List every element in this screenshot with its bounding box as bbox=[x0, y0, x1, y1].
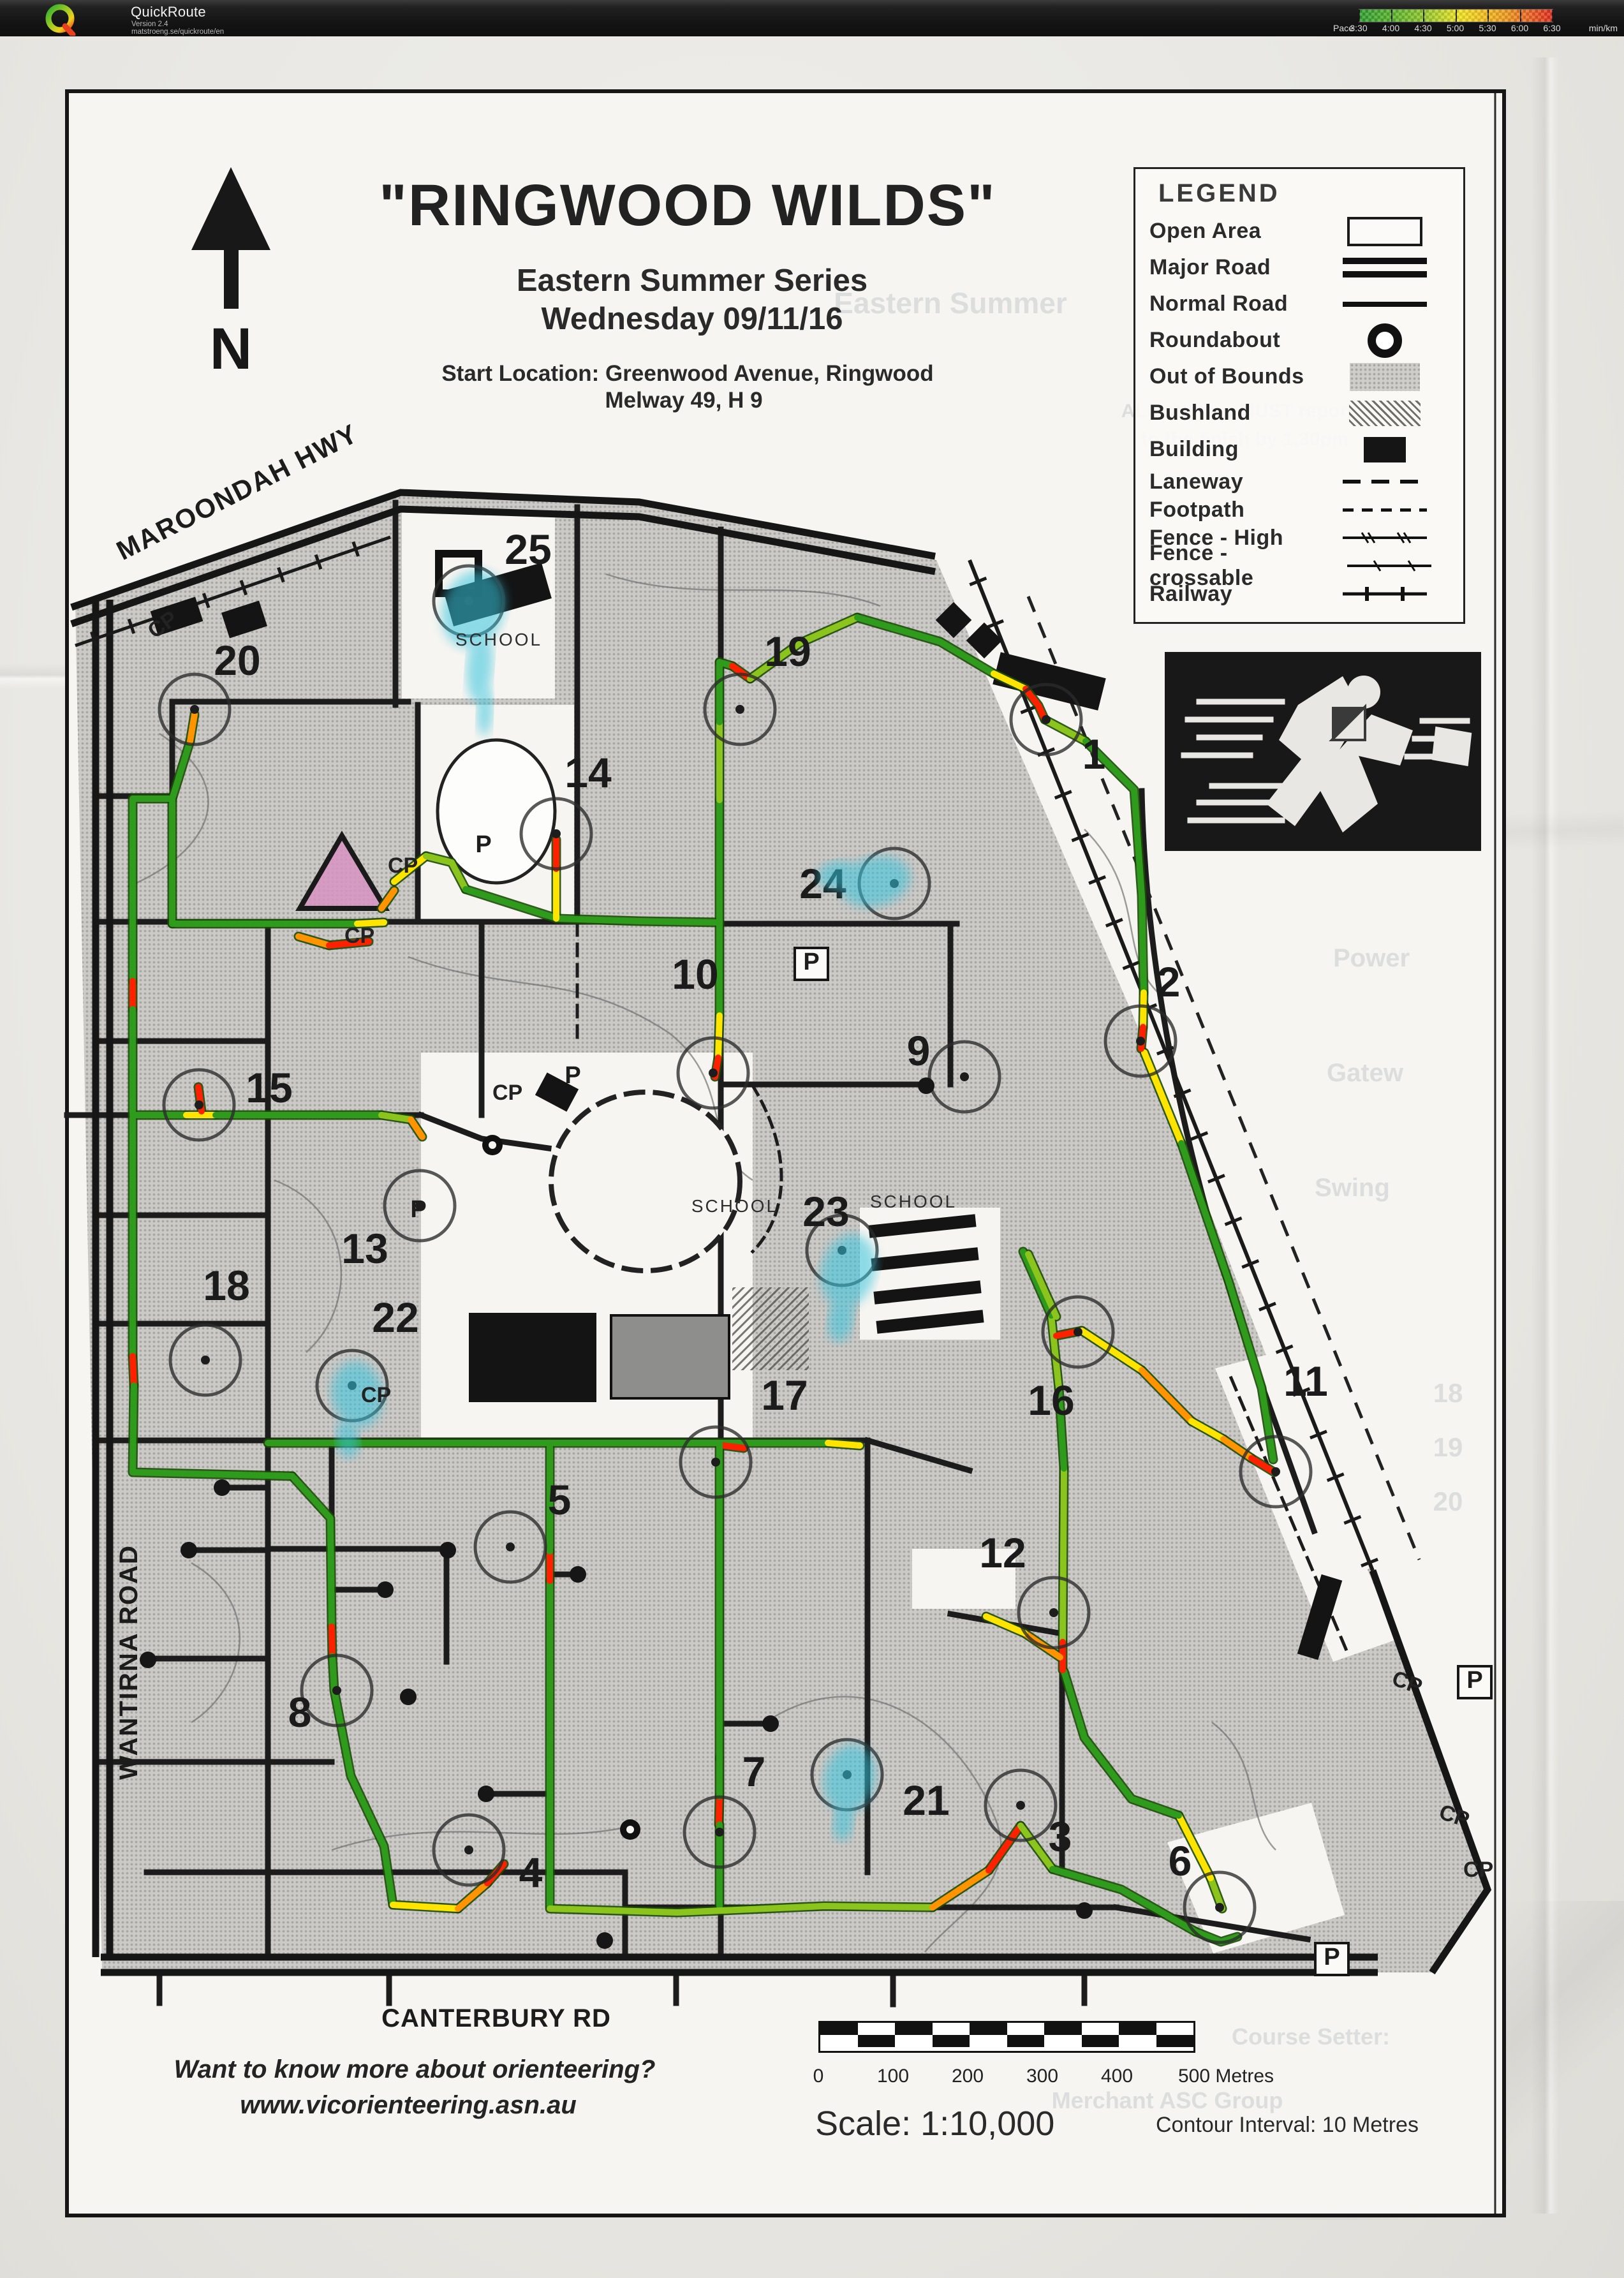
svg-text:4: 4 bbox=[519, 1849, 543, 1896]
scale-bar-cell bbox=[895, 2023, 933, 2035]
pace-legend-panel: Pace 3:304:004:305:005:306:006:30 min/km bbox=[1319, 0, 1619, 36]
parking-label: P bbox=[1466, 1667, 1482, 1694]
parking-label: P bbox=[475, 831, 491, 858]
title-bar: QuickRoute Version 2.4 matstroeng.se/qui… bbox=[0, 0, 1624, 36]
roundabout-swatch bbox=[1368, 323, 1402, 358]
legend-item: Bushland bbox=[1149, 395, 1452, 431]
parking-label: P bbox=[410, 1196, 426, 1223]
app-title: QuickRoute bbox=[131, 4, 206, 20]
svg-text:23: 23 bbox=[802, 1188, 849, 1235]
quickroute-logo-icon bbox=[37, 4, 88, 36]
scale-bar-cell bbox=[1119, 2035, 1156, 2047]
svg-text:22: 22 bbox=[372, 1294, 418, 1341]
major-road-symbol bbox=[1318, 258, 1452, 277]
parking-label: P bbox=[565, 1062, 580, 1089]
pace-tick bbox=[1423, 10, 1424, 22]
pace-tick bbox=[1487, 10, 1489, 22]
footer-url: www.vicorienteering.asn.au bbox=[240, 2091, 577, 2120]
scale-bar-cell bbox=[895, 2035, 933, 2047]
pace-tick-value: 6:30 bbox=[1543, 23, 1560, 33]
cp-label: CP bbox=[344, 924, 374, 948]
svg-text:1: 1 bbox=[1082, 730, 1106, 778]
bleed-through-text: 20 bbox=[1433, 1486, 1463, 1517]
legend-item: Out of Bounds bbox=[1149, 359, 1452, 395]
school-label: SCHOOL bbox=[455, 630, 542, 649]
bushland-symbol bbox=[1318, 401, 1452, 426]
parking-label: P bbox=[803, 949, 819, 975]
map-legend: LEGEND Open AreaMajor RoadNormal RoadRou… bbox=[1133, 167, 1465, 624]
pace-tick-value: 4:00 bbox=[1382, 23, 1399, 33]
svg-text:17: 17 bbox=[761, 1372, 808, 1419]
map-series: Eastern Summer Series bbox=[517, 263, 867, 299]
legend-item-label: Normal Road bbox=[1149, 292, 1288, 316]
pace-gradient-bar bbox=[1359, 9, 1553, 22]
scale-bar-cell bbox=[1156, 2035, 1194, 2047]
svg-text:8: 8 bbox=[288, 1689, 312, 1736]
scale-bar-cell bbox=[1119, 2023, 1156, 2035]
legend-item-label: Building bbox=[1149, 437, 1239, 462]
pace-tick-value: 5:00 bbox=[1447, 23, 1464, 33]
road-label-wantirna: WANTIRNA ROAD bbox=[115, 1544, 144, 1780]
cp-label: CP bbox=[361, 1383, 391, 1407]
svg-text:5: 5 bbox=[548, 1476, 572, 1523]
legend-item-label: Footpath bbox=[1149, 498, 1244, 522]
legend-title: LEGEND bbox=[1158, 179, 1452, 208]
building-symbol bbox=[1318, 437, 1452, 462]
legend-item-label: Bushland bbox=[1149, 401, 1251, 425]
scale-bar bbox=[818, 2021, 1195, 2053]
pace-tick bbox=[1456, 10, 1457, 22]
svg-text:16: 16 bbox=[1028, 1377, 1074, 1424]
scale-tick-label: 100 bbox=[877, 2066, 909, 2087]
cp-label: CP bbox=[388, 854, 418, 878]
app-site-url: matstroeng.se/quickroute/en bbox=[131, 28, 224, 36]
legend-item-label: Laneway bbox=[1149, 470, 1243, 494]
svg-text:19: 19 bbox=[764, 628, 811, 675]
athletics-track bbox=[551, 1092, 740, 1271]
svg-text:6: 6 bbox=[1169, 1837, 1192, 1884]
svg-text:20: 20 bbox=[214, 637, 260, 684]
svg-text:25: 25 bbox=[505, 526, 551, 573]
scale-bar-cell bbox=[1044, 2035, 1082, 2047]
orienteering-logo bbox=[1165, 652, 1481, 851]
scale-bar-cell bbox=[970, 2023, 1007, 2035]
scale-bar-cell bbox=[820, 2023, 858, 2035]
scale-bar-cell bbox=[1007, 2035, 1045, 2047]
normal-road-symbol bbox=[1318, 302, 1452, 307]
svg-text:18: 18 bbox=[203, 1262, 249, 1309]
legend-item: Footpath bbox=[1149, 496, 1452, 524]
scale-bar-cell bbox=[1082, 2023, 1119, 2035]
quickroute-window: QuickRoute Version 2.4 matstroeng.se/qui… bbox=[0, 0, 1624, 2278]
school-label: SCHOOL bbox=[691, 1196, 778, 1216]
school-label: SCHOOL bbox=[870, 1192, 957, 1211]
svg-text:3: 3 bbox=[1049, 1813, 1072, 1860]
svg-text:14: 14 bbox=[565, 749, 612, 796]
bleed-through-text: Power bbox=[1333, 944, 1410, 973]
building-swatch bbox=[1364, 437, 1406, 462]
building-gray bbox=[611, 1315, 729, 1398]
open-area-symbol bbox=[1318, 217, 1452, 246]
legend-item: Fence - crossable bbox=[1149, 552, 1452, 580]
roundabout-symbol bbox=[1318, 323, 1452, 358]
legend-item: Building bbox=[1149, 431, 1452, 468]
map-melway-ref: Melway 49, H 9 bbox=[605, 388, 762, 413]
fence-crossable-symbol bbox=[1326, 557, 1452, 575]
svg-text:10: 10 bbox=[672, 950, 718, 998]
bushland-swatch bbox=[1349, 401, 1421, 426]
scale-bar-cell bbox=[933, 2035, 970, 2047]
scale-tick-label: 500 Metres bbox=[1178, 2066, 1274, 2087]
scale-bar-cell bbox=[1007, 2023, 1045, 2035]
cp-label: CP bbox=[1463, 1858, 1493, 1882]
scale-tick-label: 300 bbox=[1026, 2066, 1058, 2087]
pace-tick-value: 3:30 bbox=[1350, 23, 1367, 33]
fence-high-symbol bbox=[1318, 529, 1452, 547]
scale-bar-cell bbox=[1156, 2023, 1194, 2035]
scale-tick-label: 0 bbox=[813, 2066, 824, 2087]
bleed-through-text: 19 bbox=[1433, 1432, 1463, 1463]
pace-unit: min/km bbox=[1589, 23, 1618, 33]
legend-item-label: Major Road bbox=[1149, 255, 1271, 280]
pace-tick bbox=[1391, 10, 1392, 22]
scale-bar-cell bbox=[1044, 2023, 1082, 2035]
legend-item-label: Railway bbox=[1149, 582, 1232, 607]
map-start-location: Start Location: Greenwood Avenue, Ringwo… bbox=[441, 361, 933, 387]
svg-text:7: 7 bbox=[742, 1748, 766, 1795]
scale-tick-label: 400 bbox=[1101, 2066, 1133, 2087]
svg-text:13: 13 bbox=[341, 1225, 388, 1272]
pace-tick-value: 5:30 bbox=[1479, 23, 1496, 33]
contour-interval-text: Contour Interval: 10 Metres bbox=[1156, 2113, 1419, 2138]
legend-item: Normal Road bbox=[1149, 286, 1452, 322]
bleed-through-text: Merchant ASC Group bbox=[1052, 2087, 1283, 2114]
legend-item-label: Open Area bbox=[1149, 219, 1261, 244]
north-label: N bbox=[210, 316, 252, 381]
scale-bar-cell bbox=[858, 2035, 896, 2047]
scale-bar-cell bbox=[858, 2023, 896, 2035]
pace-tick bbox=[1552, 10, 1553, 22]
major-road-swatch bbox=[1343, 258, 1427, 277]
bleed-through-text: Course Setter: bbox=[1232, 2023, 1390, 2050]
pace-tick bbox=[1359, 10, 1360, 22]
normal-road-swatch bbox=[1343, 302, 1427, 307]
pace-tick-value: 4:30 bbox=[1414, 23, 1431, 33]
pace-tick bbox=[1520, 10, 1521, 22]
scale-bar-cell bbox=[820, 2035, 858, 2047]
parking-label: P bbox=[1324, 1944, 1340, 1971]
svg-text:12: 12 bbox=[979, 1529, 1026, 1576]
map-title: "RINGWOOD WILDS" bbox=[379, 172, 996, 239]
map-date: Wednesday 09/11/16 bbox=[541, 301, 843, 337]
pace-tick-value: 6:00 bbox=[1511, 23, 1528, 33]
open-area-swatch bbox=[1347, 217, 1422, 246]
legend-item: Laneway bbox=[1149, 468, 1452, 496]
legend-item: Roundabout bbox=[1149, 322, 1452, 359]
legend-item: Major Road bbox=[1149, 249, 1452, 286]
scale-text: Scale: 1:10,000 bbox=[815, 2104, 1054, 2143]
svg-text:2: 2 bbox=[1157, 958, 1181, 1005]
bleed-through-text: Gatew bbox=[1327, 1059, 1403, 1088]
scale-bar-cell bbox=[970, 2035, 1007, 2047]
svg-text:9: 9 bbox=[907, 1027, 931, 1074]
laneway-symbol bbox=[1318, 480, 1452, 484]
svg-text:21: 21 bbox=[903, 1777, 949, 1824]
oob-swatch bbox=[1350, 363, 1420, 391]
svg-text:11: 11 bbox=[1283, 1357, 1328, 1405]
scale-bar-cell bbox=[933, 2023, 970, 2035]
cp-label: CP bbox=[492, 1081, 522, 1105]
footpath-symbol bbox=[1318, 508, 1452, 512]
svg-text:15: 15 bbox=[246, 1064, 292, 1111]
legend-item-label: Roundabout bbox=[1149, 328, 1280, 353]
footpath-swatch bbox=[1343, 508, 1427, 512]
bushland-patch bbox=[732, 1287, 809, 1370]
footer-question: Want to know more about orienteering? bbox=[174, 2055, 656, 2084]
bleed-through-text: 18 bbox=[1433, 1378, 1463, 1409]
road-label-canterbury: CANTERBURY RD bbox=[381, 2004, 611, 2033]
bleed-through-text: Eastern Summer bbox=[834, 286, 1067, 320]
legend-item: Open Area bbox=[1149, 213, 1452, 249]
scale-tick-label: 200 bbox=[952, 2066, 984, 2087]
oob-symbol bbox=[1318, 363, 1452, 391]
legend-item-label: Out of Bounds bbox=[1149, 364, 1304, 389]
railway-symbol bbox=[1318, 585, 1452, 603]
scale-bar-cell bbox=[1082, 2035, 1119, 2047]
app-version: Version 2.4 bbox=[131, 20, 168, 28]
laneway-swatch bbox=[1343, 480, 1427, 484]
bleed-through-text: Swing bbox=[1315, 1174, 1390, 1202]
